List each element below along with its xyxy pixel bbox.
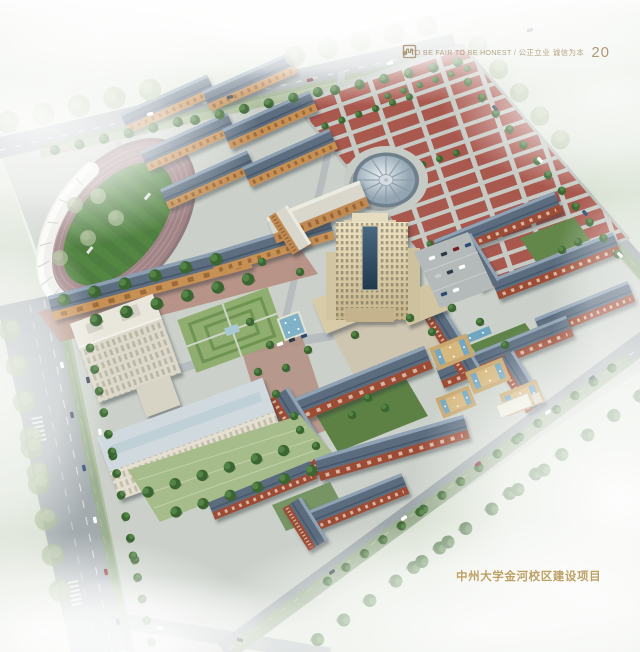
brochure-page: ◆ TO BE FAIR TO BE HONEST / 公正立业 诚信为本 20… bbox=[0, 0, 640, 652]
campus-aerial-rendering bbox=[0, 0, 640, 652]
page-header-slogan: ◆ TO BE FAIR TO BE HONEST / 公正立业 诚信为本 20 bbox=[402, 44, 610, 61]
gate-monogram-icon bbox=[402, 44, 417, 59]
project-caption: 中州大学金河校区建设项目 bbox=[456, 568, 601, 584]
slogan-text: ◆ TO BE FAIR TO BE HONEST / 公正立业 诚信为本 bbox=[402, 47, 584, 58]
page-number: 20 bbox=[591, 44, 610, 61]
